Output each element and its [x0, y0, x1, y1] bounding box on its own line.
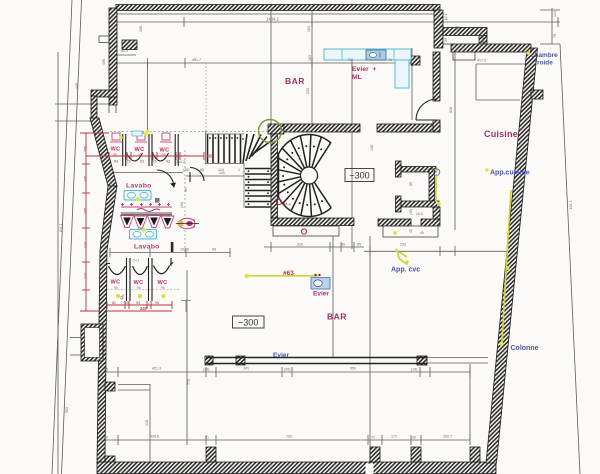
svg-text:45: 45	[409, 229, 413, 233]
svg-text:WC: WC	[111, 280, 121, 286]
svg-text:417.5: 417.5	[477, 59, 486, 63]
svg-text:93: 93	[166, 160, 170, 164]
svg-text:2+1: 2+1	[133, 259, 139, 263]
svg-text:Evier: Evier	[273, 352, 290, 359]
svg-text:Evier: Evier	[313, 291, 329, 298]
svg-text:148: 148	[370, 145, 374, 151]
svg-text:124: 124	[553, 11, 557, 17]
svg-text:458: 458	[84, 146, 88, 152]
svg-text:715: 715	[347, 58, 353, 62]
svg-text:15: 15	[127, 160, 131, 164]
svg-text:775: 775	[187, 379, 191, 385]
svg-text:20: 20	[444, 38, 448, 42]
svg-text:16.5: 16.5	[416, 212, 423, 216]
svg-text:143: 143	[84, 273, 88, 279]
svg-text:85: 85	[341, 243, 345, 247]
svg-text:1434.2: 1434.2	[266, 17, 279, 22]
svg-text:262.7: 262.7	[443, 435, 452, 439]
svg-text:528: 528	[449, 107, 453, 113]
svg-text:App. cvc: App. cvc	[391, 267, 420, 274]
svg-text:69: 69	[212, 248, 216, 252]
svg-text:(19): (19)	[411, 368, 417, 372]
svg-text:(20): (20)	[284, 368, 290, 372]
svg-text:165: 165	[139, 26, 143, 32]
svg-text:451.7: 451.7	[192, 58, 201, 62]
svg-text:Cuisine: Cuisine	[484, 129, 518, 139]
svg-text:(26): (26)	[180, 202, 184, 208]
svg-text:−300: −300	[238, 318, 258, 328]
svg-text:68: 68	[456, 26, 460, 30]
svg-text:214.2: 214.2	[176, 160, 185, 164]
svg-text:163: 163	[307, 26, 311, 32]
svg-text:BAR: BAR	[327, 312, 347, 322]
svg-text:16: 16	[125, 301, 129, 305]
svg-text:333: 333	[306, 88, 310, 94]
svg-text:46.3: 46.3	[121, 49, 128, 53]
svg-text:134.3: 134.3	[569, 201, 573, 210]
svg-text:45: 45	[104, 436, 108, 440]
svg-text:550: 550	[350, 367, 356, 371]
svg-text:45: 45	[104, 368, 108, 372]
svg-text:Lavabo: Lavabo	[134, 244, 160, 251]
svg-text:553: 553	[65, 407, 69, 413]
svg-text:702: 702	[286, 435, 292, 439]
svg-text:430: 430	[84, 176, 88, 182]
svg-text:10.4: 10.4	[444, 14, 448, 21]
svg-text:241: 241	[243, 367, 249, 371]
svg-text:95: 95	[155, 301, 159, 305]
svg-text:froide: froide	[535, 60, 553, 67]
svg-text:172: 172	[391, 435, 397, 439]
svg-text:143: 143	[84, 242, 88, 248]
svg-text:445: 445	[75, 83, 79, 89]
svg-text:253: 253	[400, 243, 406, 247]
svg-text:31: 31	[205, 436, 209, 440]
svg-text:BAR: BAR	[285, 76, 305, 86]
svg-text:75: 75	[553, 34, 557, 38]
svg-text:45: 45	[420, 231, 424, 235]
svg-text:421.3: 421.3	[152, 367, 161, 371]
svg-text:430.6: 430.6	[150, 435, 159, 439]
svg-text:83: 83	[114, 160, 118, 164]
svg-text:185: 185	[84, 208, 88, 214]
svg-text:Colonne: Colonne	[511, 345, 539, 352]
svg-text:14.9: 14.9	[414, 169, 421, 173]
svg-text:Lavabo: Lavabo	[126, 183, 152, 190]
svg-text:96: 96	[184, 188, 188, 192]
svg-text:104.1: 104.1	[59, 224, 63, 233]
svg-text:83: 83	[140, 160, 144, 164]
svg-text:15: 15	[153, 160, 157, 164]
svg-text:76: 76	[388, 58, 392, 62]
svg-text:93: 93	[136, 301, 140, 305]
svg-text:96: 96	[200, 168, 204, 172]
svg-text:20: 20	[412, 436, 416, 440]
svg-text:chambre: chambre	[531, 52, 558, 59]
svg-text:App.cuisine: App.cuisine	[490, 170, 530, 177]
svg-text:163: 163	[308, 55, 312, 61]
svg-text:495: 495	[102, 59, 106, 65]
svg-text:1: 1	[238, 168, 240, 172]
svg-text:(30): (30)	[203, 368, 209, 372]
svg-text:(45): (45)	[409, 209, 413, 215]
svg-text:ML: ML	[352, 74, 362, 81]
svg-text:Evier +: Evier +	[352, 66, 376, 73]
svg-text:318: 318	[145, 420, 149, 426]
svg-text:72: 72	[371, 436, 375, 440]
svg-text:247: 247	[140, 306, 148, 311]
svg-text:−300: −300	[349, 170, 369, 180]
svg-text:124: 124	[219, 171, 225, 175]
svg-text:64.4: 64.4	[283, 202, 292, 207]
svg-text:310: 310	[297, 243, 303, 247]
svg-text:85: 85	[357, 243, 361, 247]
svg-text:100.6: 100.6	[180, 248, 189, 252]
svg-text:#63: #63	[283, 270, 294, 277]
svg-text:82: 82	[112, 301, 116, 305]
svg-text:(26): (26)	[183, 168, 189, 172]
svg-text:85: 85	[409, 182, 413, 186]
svg-text:270: 270	[298, 155, 302, 161]
svg-text:133: 133	[206, 154, 214, 159]
